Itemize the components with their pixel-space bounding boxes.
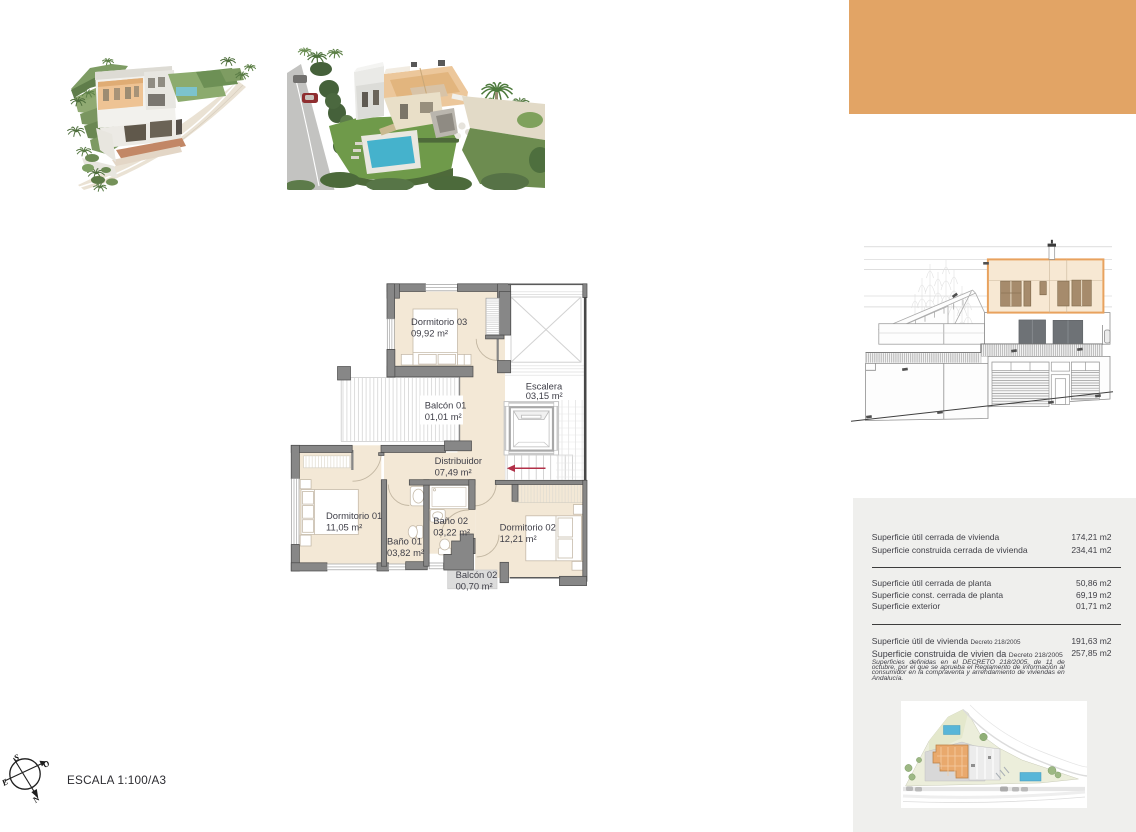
svg-text:12,21 m²: 12,21 m²	[500, 533, 537, 544]
svg-text:11,05 m²: 11,05 m²	[326, 522, 362, 533]
svg-text:O: O	[41, 758, 52, 770]
svg-text:N: N	[30, 793, 43, 806]
svg-text:03,82 m²: 03,82 m²	[387, 547, 424, 558]
svg-text:Dormitorio 02: Dormitorio 02	[500, 522, 556, 533]
svg-text:00,70 m²: 00,70 m²	[456, 581, 493, 592]
svg-text:E: E	[2, 776, 10, 788]
svg-text:Distribuidor: Distribuidor	[435, 455, 482, 466]
svg-text:Balcón 01: Balcón 01	[425, 400, 467, 411]
svg-text:03,15 m²: 03,15 m²	[526, 390, 563, 401]
svg-text:03,22 m²: 03,22 m²	[433, 527, 470, 538]
svg-text:Dormitorio 03: Dormitorio 03	[411, 316, 467, 327]
svg-text:Baño 01: Baño 01	[387, 536, 422, 547]
svg-text:07,49 m²: 07,49 m²	[435, 466, 472, 477]
svg-text:01,01 m²: 01,01 m²	[425, 411, 462, 422]
svg-text:09,92 m²: 09,92 m²	[411, 328, 448, 339]
svg-text:S: S	[12, 752, 20, 763]
svg-text:Balcón 02: Balcón 02	[456, 569, 498, 580]
svg-text:Dormitorio 01: Dormitorio 01	[326, 510, 382, 521]
svg-text:Baño 02: Baño 02	[433, 515, 468, 526]
